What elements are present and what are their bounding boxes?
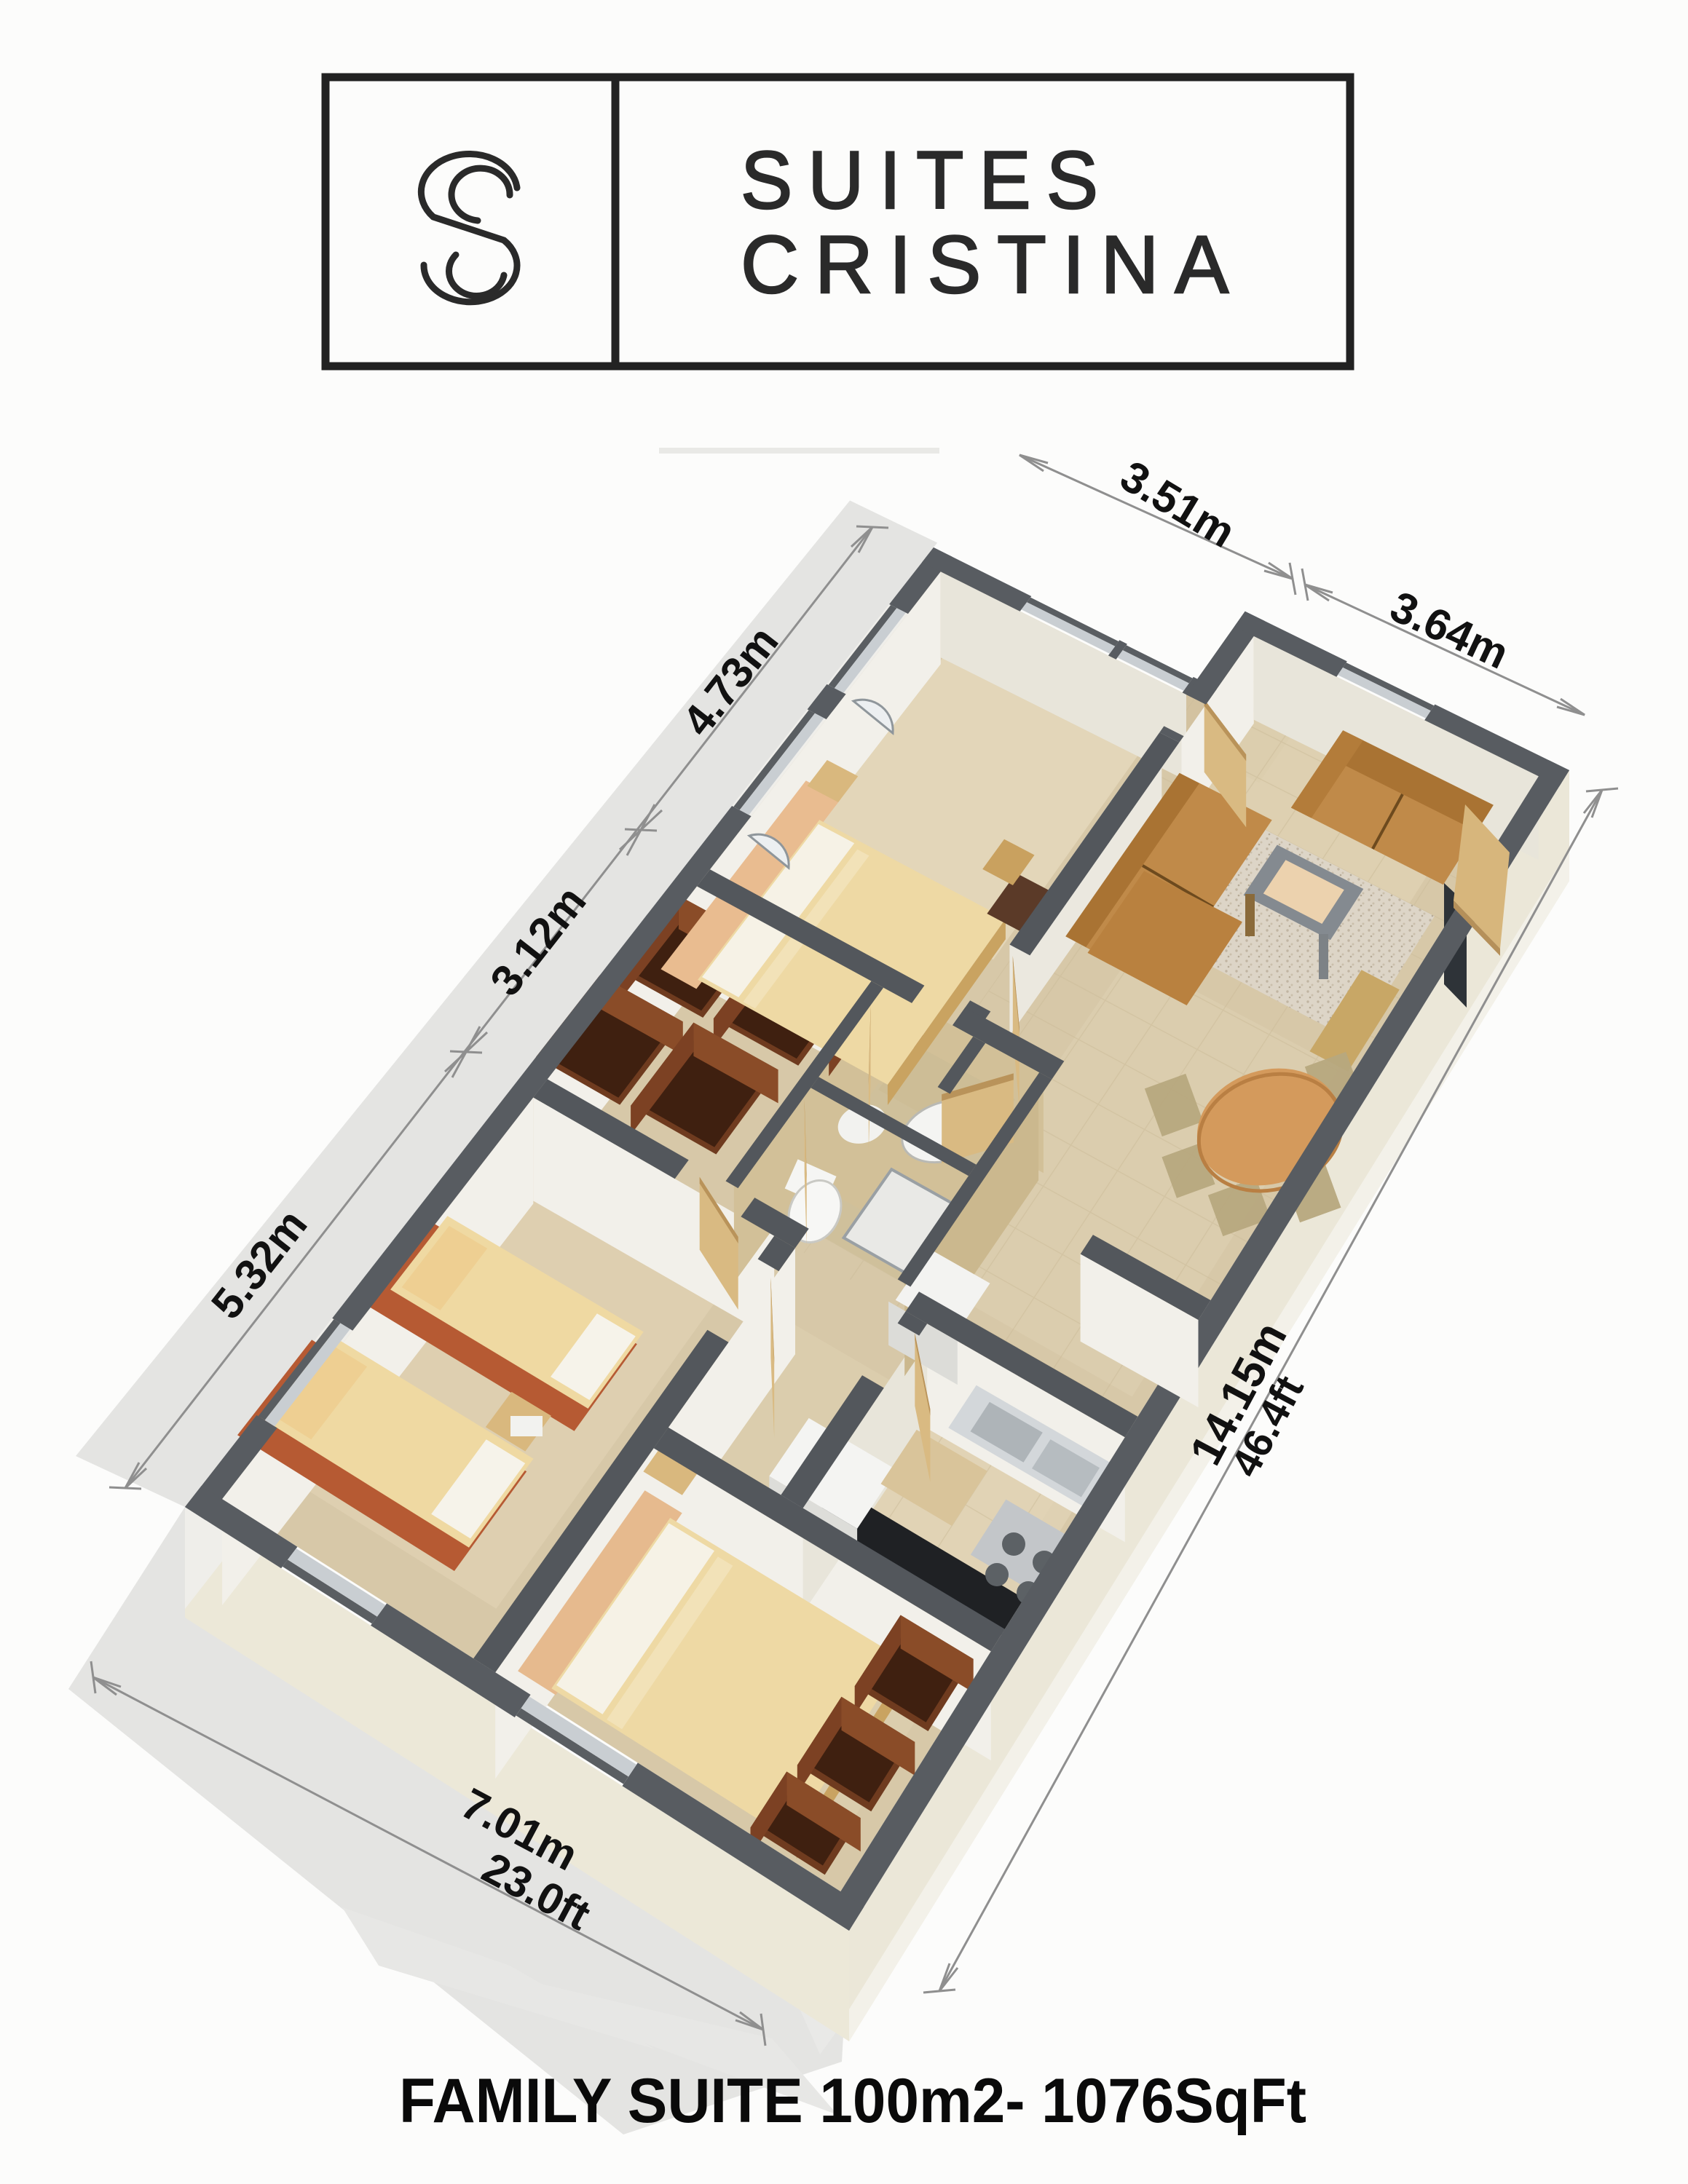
svg-text:FAMILY SUITE 100m2- 1076SqFt: FAMILY SUITE 100m2- 1076SqFt — [399, 2066, 1306, 2136]
svg-text:SUITES: SUITES — [741, 135, 1113, 226]
svg-text:CRISTINA: CRISTINA — [741, 219, 1245, 310]
